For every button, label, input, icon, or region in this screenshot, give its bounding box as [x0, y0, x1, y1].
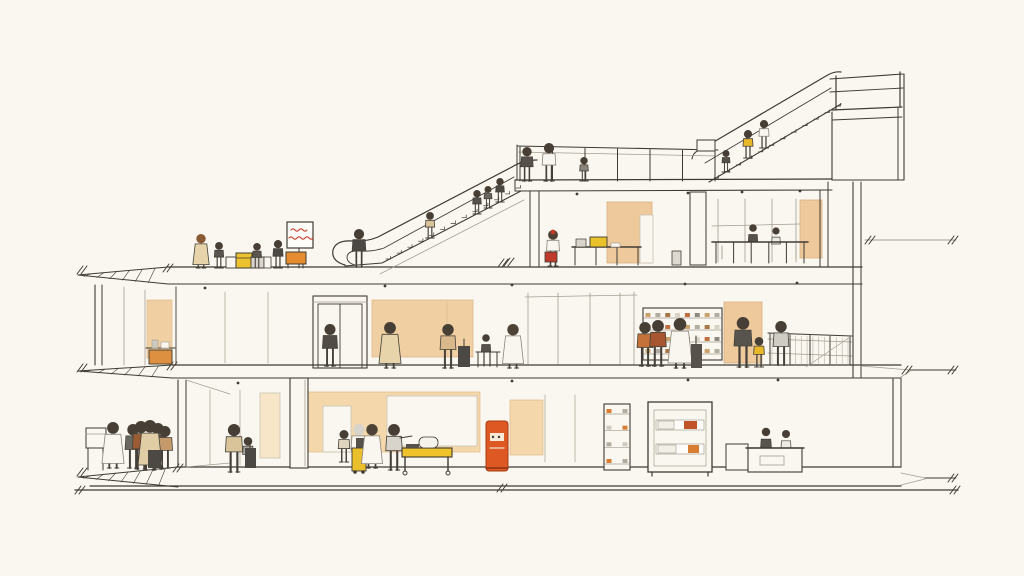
person-1f-beige-coat — [384, 322, 396, 334]
shop-shelf-1f — [715, 337, 720, 341]
escalator1-deck — [345, 191, 521, 266]
person-terrace-coat — [193, 244, 209, 265]
counter-item-dish — [611, 243, 620, 247]
ceiling-lights-2f — [741, 191, 744, 194]
cabinet-gf — [648, 402, 712, 472]
narrow-shelf-gf — [607, 459, 612, 463]
walkway-top — [515, 179, 832, 180]
deck-rail-mid — [830, 88, 903, 92]
architectural-section-sketch — [0, 0, 1024, 576]
person-terrace-dark — [215, 242, 223, 250]
cabinet-item-orange — [688, 445, 699, 453]
person-gf-queue-small — [340, 430, 349, 439]
person-escalator2-b — [743, 139, 753, 147]
dim-conv-1f-a — [861, 366, 910, 370]
narrow-shelf-gf — [623, 409, 628, 413]
escalator2-deck — [709, 104, 841, 182]
slab-1f-taper — [152, 366, 159, 377]
ceiling-lights-1f — [796, 282, 799, 285]
shop-shelf-1f — [705, 325, 710, 329]
dim-conv-gf-b — [901, 479, 925, 485]
ceiling-lights-2f — [799, 190, 802, 193]
shop-shelf-1f — [655, 349, 660, 353]
child-gf — [244, 437, 253, 446]
shop-shelf-1f — [715, 313, 720, 317]
ceiling-lights-1f — [384, 285, 387, 288]
person-gf-queue-small — [338, 440, 350, 449]
person-escalator2-a — [722, 158, 730, 163]
slab-1f-taper — [78, 365, 172, 371]
slab-1f-taper — [125, 368, 132, 375]
person-1f-at-railing — [773, 333, 789, 347]
narrow-shelf-gf — [623, 442, 628, 446]
sketch-canvas — [0, 0, 1024, 576]
person-gf-white-coat-b — [366, 424, 377, 435]
cabinet-item — [658, 421, 674, 429]
ceiling-lights-1f — [204, 287, 207, 290]
shop-shelf-1f — [646, 313, 651, 317]
door-2f — [640, 215, 653, 263]
child-1f-yellow — [755, 337, 764, 346]
person-gf-clerk — [388, 424, 400, 436]
person-1f-bench — [482, 334, 490, 342]
child-1f-yellow — [754, 346, 765, 354]
person-2f-table-b — [772, 227, 779, 234]
alcove-desk-front — [149, 350, 172, 364]
staff-gf-b — [782, 430, 790, 438]
slab-2f-taper — [148, 268, 155, 283]
ceiling-lights-gf — [237, 382, 240, 385]
person-gf-white-coat — [102, 434, 124, 463]
vending-buttons — [498, 436, 500, 438]
gf-slab-taper — [134, 471, 141, 484]
person-terrace-vendor — [253, 243, 261, 251]
person-escalator1-d — [496, 178, 503, 185]
alcove-item-a — [152, 340, 158, 348]
person-2f-table-b — [772, 237, 781, 244]
person-1f-parent — [737, 317, 750, 330]
person-gf-walking — [228, 424, 240, 436]
person-2f-table-a — [749, 224, 757, 232]
person-walkway-child — [580, 165, 589, 171]
counter-item-gray — [576, 239, 586, 247]
shop-shelf-1f — [705, 313, 710, 317]
staff-gf-a — [762, 428, 770, 436]
person-1f-white-dress — [502, 336, 523, 364]
ceiling-lights-2f — [576, 193, 579, 196]
person-1f-shopper-b — [650, 332, 667, 346]
cabinet-item-red — [684, 421, 697, 429]
person-gf-walking — [225, 437, 242, 452]
person-escalator2-c — [759, 129, 769, 137]
narrow-shelf-gf — [623, 459, 628, 463]
alcove-item-b — [161, 342, 169, 348]
person-escalator1-a — [426, 212, 434, 220]
dark-tray-on-table — [406, 444, 419, 448]
person-terrace-right — [274, 240, 282, 248]
person-escalator1-b — [473, 190, 480, 197]
ceiling-lights-1f — [511, 284, 514, 287]
ceiling-lights-gf — [511, 380, 514, 383]
shop-shelf-1f — [685, 313, 690, 317]
counter-item-yellow — [590, 237, 607, 247]
person-terrace-vendor — [253, 251, 262, 257]
person-gf-hood — [353, 424, 364, 435]
narrow-shelf-gf — [607, 442, 612, 446]
desk-side-box — [726, 444, 748, 470]
ceiling-lights-1f — [684, 283, 687, 286]
ceiling-lights-gf — [777, 379, 780, 382]
white-bag-on-table — [419, 437, 438, 448]
slab-1f-taper — [138, 367, 145, 376]
suitcase-gf — [245, 448, 256, 468]
person-1f-bench — [481, 344, 491, 352]
person-gf-clerk — [386, 436, 403, 450]
slab-2f-taper — [122, 270, 129, 280]
shop-shelf-1f — [715, 325, 720, 329]
person-walkway-b — [544, 143, 554, 153]
person-1f-shopper-a — [639, 322, 650, 333]
person-escalator1-c — [484, 194, 492, 199]
shop-shelf-1f — [675, 313, 680, 317]
walkway-bottom — [515, 190, 832, 191]
person-gf-white-coat — [107, 422, 119, 434]
person-walkway-child — [580, 157, 587, 164]
vending-buttons — [492, 436, 494, 438]
bin-2f — [672, 251, 681, 265]
person-gf-group-e — [160, 426, 171, 437]
roller-bag-1f — [691, 344, 702, 368]
person-1f-doorway — [322, 336, 337, 349]
person-terrace-coat — [196, 234, 205, 243]
person-escalator2-c — [760, 120, 768, 128]
suitcase-1f — [458, 346, 470, 367]
terrace-yellow-stall — [236, 253, 252, 268]
red-cap — [551, 230, 556, 235]
alcove-panel-1f — [147, 300, 172, 358]
person-escalator1-base — [354, 229, 364, 239]
person-1f-white-coat — [674, 318, 687, 331]
shop-shelf-1f — [665, 325, 670, 329]
staff-gf-a — [761, 439, 772, 448]
person-walkway-b — [542, 154, 556, 165]
slab-2f-taper — [110, 272, 117, 279]
deck-rail-top — [830, 74, 903, 79]
person-escalator1-a — [425, 220, 434, 227]
sign-stand-frame — [86, 428, 106, 448]
terrace-podium — [251, 257, 264, 268]
person-walkway-a — [522, 147, 531, 156]
ceiling-lights-gf — [687, 379, 690, 382]
person-2f-table-a — [748, 234, 758, 242]
terrace-bin — [264, 257, 271, 268]
person-escalator2-a — [723, 150, 730, 157]
gf-slab-taper — [146, 470, 153, 485]
wall-panel-2f-b — [800, 200, 822, 258]
door-panel-gf-left — [260, 393, 280, 458]
person-escalator1-base — [352, 240, 366, 251]
vending-machine — [486, 421, 508, 471]
person-escalator1-d — [496, 186, 505, 192]
gf-corridor-persp-top — [186, 380, 230, 394]
person-1f-doorway — [325, 324, 336, 335]
top-deck-bottom — [832, 117, 902, 120]
person-1f-beige-coat — [379, 334, 401, 363]
yellow-table-gf — [402, 448, 452, 457]
gf-slab-taper — [109, 473, 116, 481]
shop-shelf-1f — [715, 349, 720, 353]
shop-shelf-1f — [705, 349, 710, 353]
person-escalator2-b — [744, 130, 752, 138]
narrow-shelf-gf — [607, 409, 612, 413]
reception-desk — [748, 448, 802, 472]
shop-shelf-1f — [655, 313, 660, 317]
person-escalator1-c — [485, 186, 492, 193]
red-bag-2f — [545, 252, 557, 262]
column-2f — [690, 192, 706, 265]
gf-slab-taper — [121, 472, 128, 482]
person-1f-shopper-b — [652, 320, 664, 332]
person-1f-traveler — [440, 336, 456, 350]
person-gf-white-coat-b — [361, 436, 382, 464]
person-terrace-right — [273, 249, 283, 257]
person-2f-redcap — [547, 240, 560, 251]
person-1f-parent — [734, 330, 752, 346]
person-1f-traveler — [442, 324, 453, 335]
person-escalator1-b — [473, 198, 482, 204]
shop-shelf-1f — [665, 313, 670, 317]
person-terrace-dark — [214, 250, 223, 257]
wall-panel-gf-right — [510, 400, 543, 455]
slab-2f-taper — [78, 267, 168, 275]
ceiling-lights-2f — [687, 192, 690, 195]
top-deck-top — [832, 107, 902, 110]
person-1f-white-coat — [668, 331, 692, 363]
terrace-table — [226, 257, 236, 268]
person-gf-group-c — [144, 420, 157, 433]
person-1f-at-railing — [775, 321, 786, 332]
dim-conv-gf-a — [901, 473, 925, 478]
narrow-shelf-gf — [623, 426, 628, 430]
person-walkway-a — [521, 157, 533, 167]
cabinet-item — [658, 445, 676, 453]
cart-wheel — [361, 470, 365, 474]
cart-wheel — [353, 470, 357, 474]
walkway-sign-box — [697, 140, 715, 151]
shop-shelf-1f — [695, 313, 700, 317]
suitcase-gf-group — [148, 450, 161, 468]
shop-shelf-1f — [705, 337, 710, 341]
narrow-shelf-gf — [607, 426, 612, 430]
escalator2-handrail — [700, 72, 841, 150]
shop-shelf-1f — [695, 325, 700, 329]
sale-sign-board — [287, 222, 313, 248]
person-1f-white-dress — [507, 324, 518, 335]
slab-2f-taper — [135, 269, 142, 281]
gf-slab-taper — [159, 468, 166, 486]
terrace-orange-counter — [286, 252, 306, 264]
